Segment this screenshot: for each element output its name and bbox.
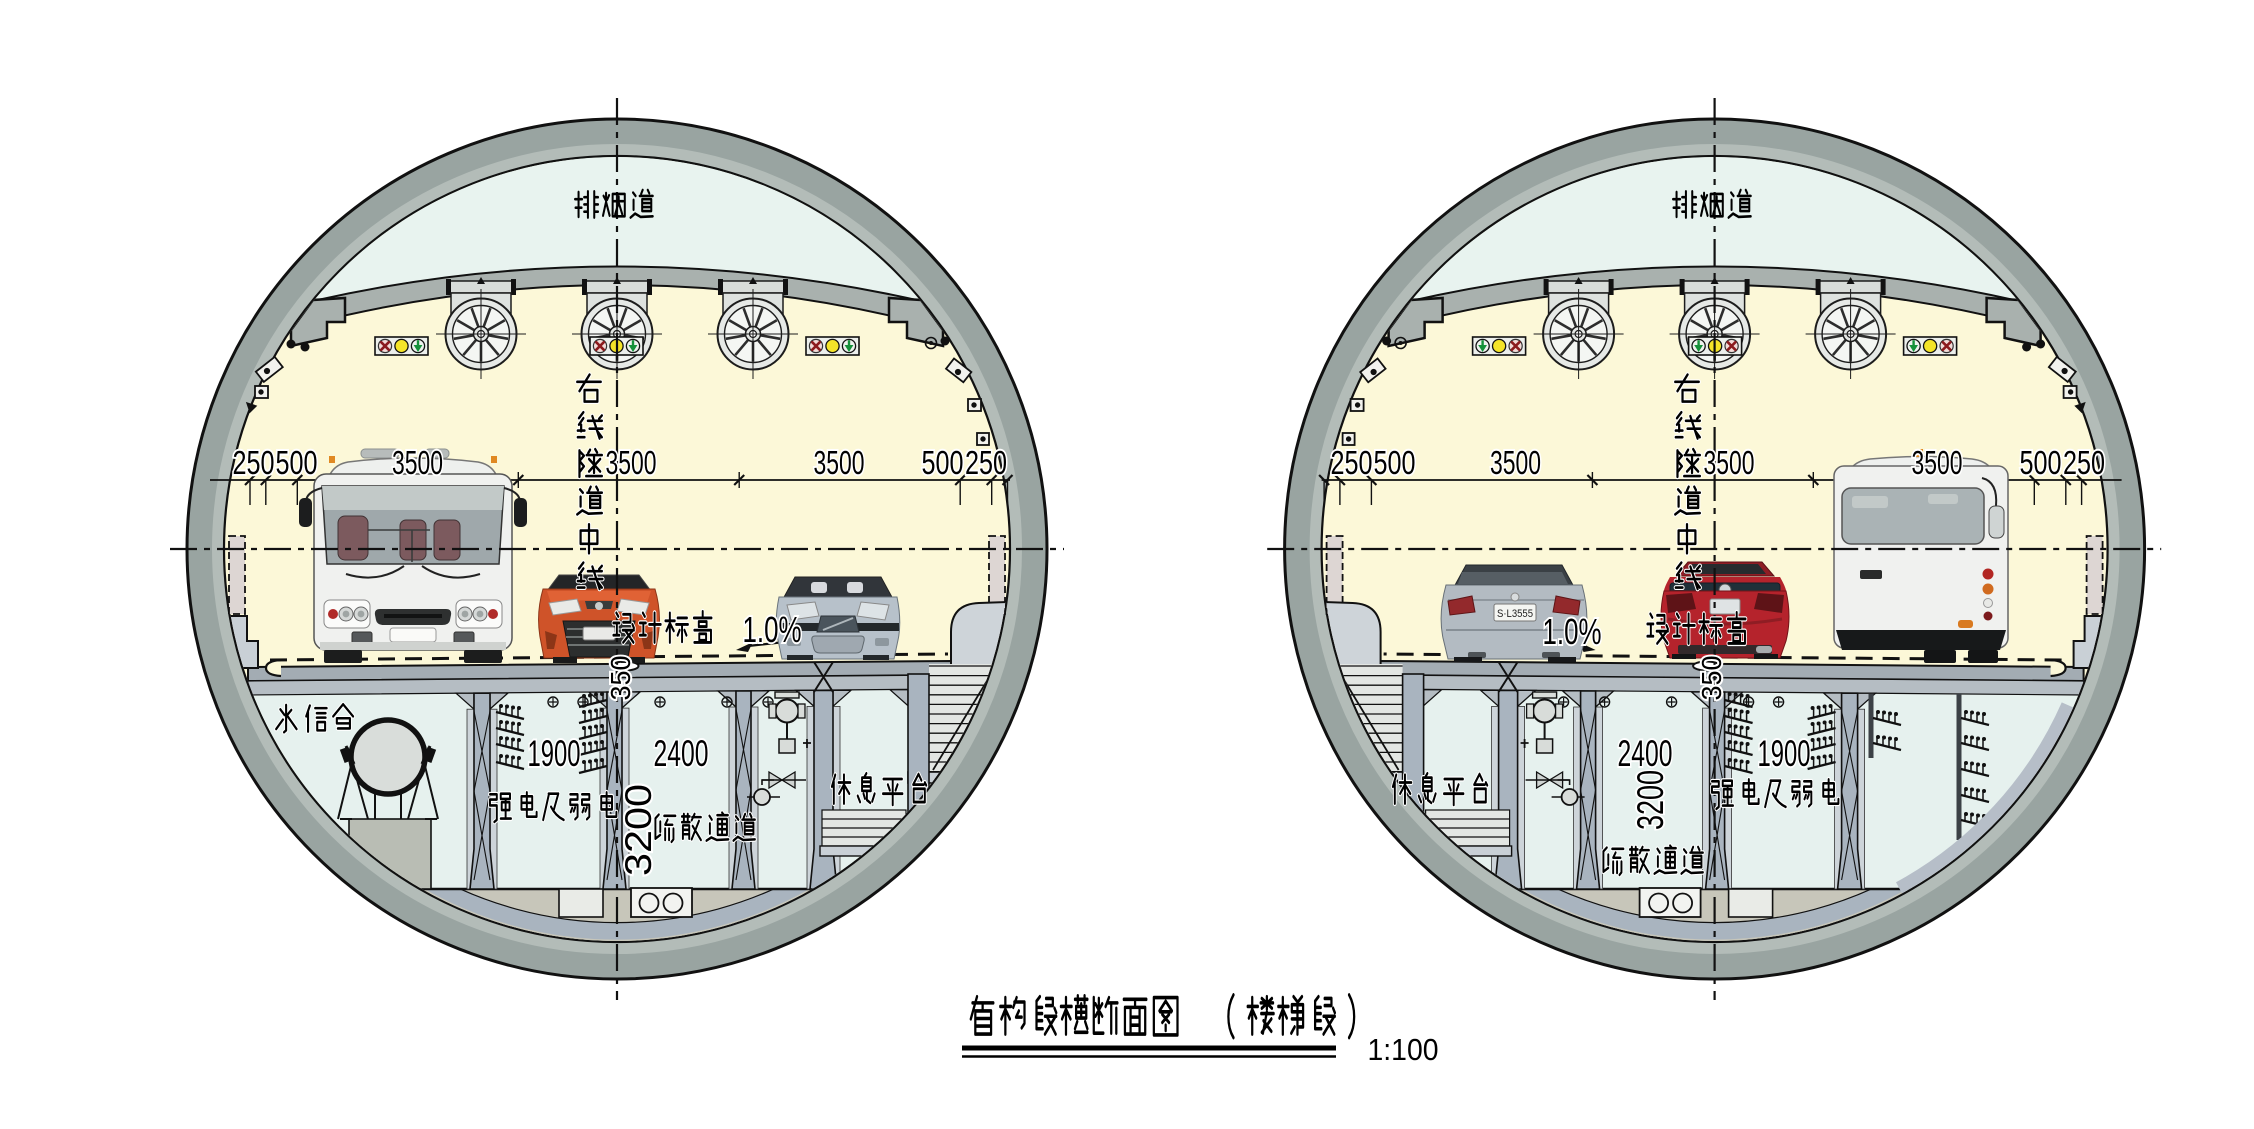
svg-text:1900: 1900 [1758,733,1811,774]
svg-text:3200: 3200 [618,784,659,876]
svg-text:250: 250 [965,444,1007,481]
svg-text:500: 500 [276,444,318,481]
svg-text:250: 250 [2063,444,2105,481]
svg-text:350: 350 [1696,656,1727,701]
svg-text:250: 250 [1331,444,1373,481]
svg-text:3500: 3500 [392,444,443,481]
svg-text:S·L3555: S·L3555 [1497,608,1533,620]
svg-text:3500: 3500 [1490,444,1541,481]
svg-text:1.0%: 1.0% [1543,611,1602,652]
svg-text:3500: 3500 [1704,444,1755,481]
svg-text:500: 500 [2020,444,2062,481]
svg-text:2400: 2400 [654,733,709,774]
svg-text:1900: 1900 [528,733,581,774]
svg-text:3200: 3200 [1630,770,1671,830]
svg-text:500: 500 [922,444,964,481]
svg-text:250: 250 [233,444,275,481]
svg-text:1.0%: 1.0% [743,609,802,650]
svg-text:350: 350 [605,656,636,701]
svg-text:1:100: 1:100 [1368,1032,1439,1067]
svg-text:3500: 3500 [814,444,865,481]
svg-text:3500: 3500 [606,444,657,481]
svg-text:500: 500 [1374,444,1416,481]
svg-text:2400: 2400 [1618,733,1673,774]
svg-text:3500: 3500 [1912,444,1963,481]
